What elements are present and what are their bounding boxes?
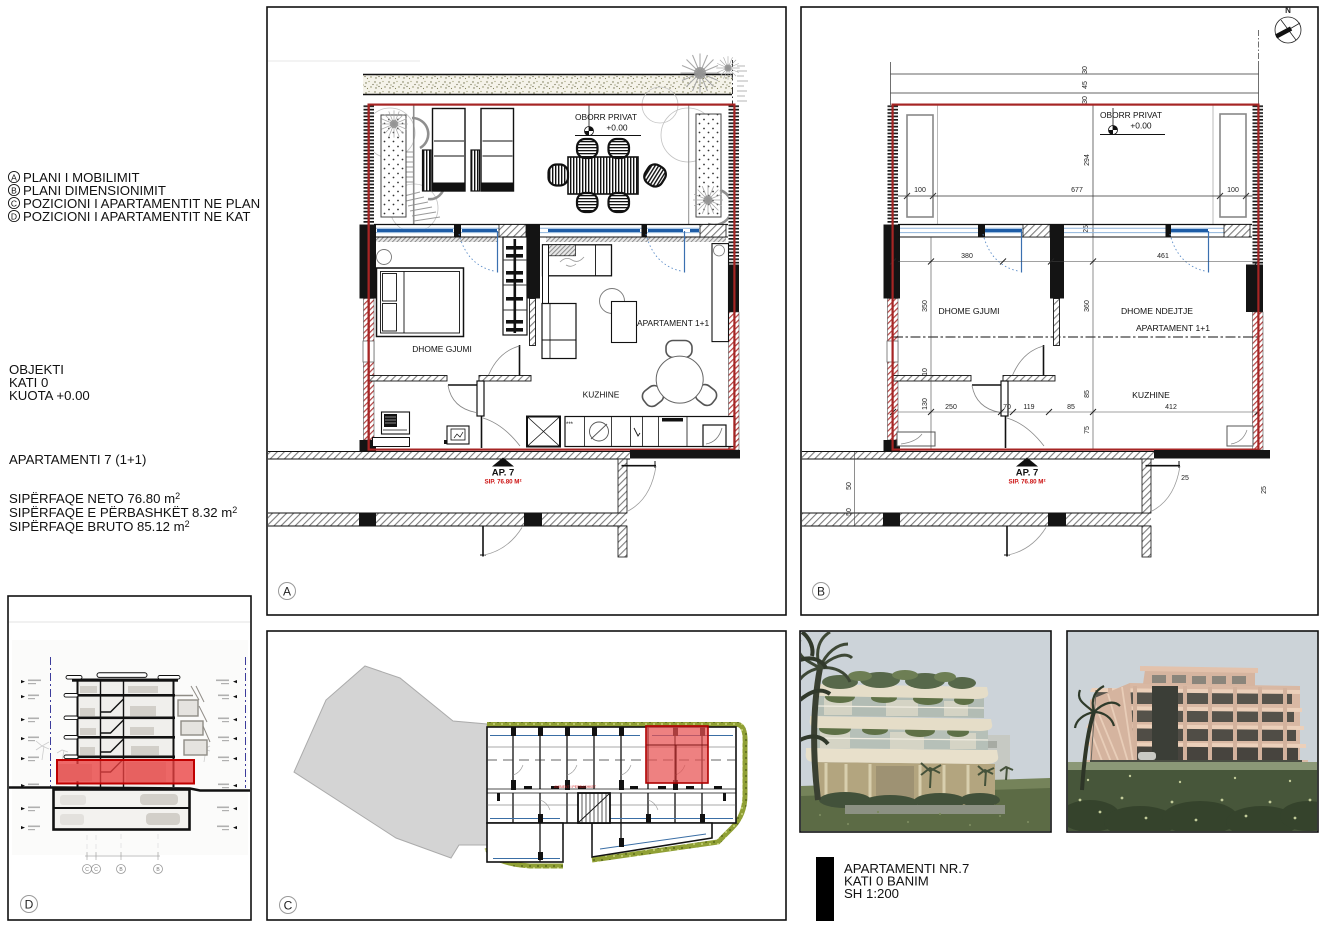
svg-text:85: 85 [1084, 390, 1091, 398]
svg-text:+0.00: +0.00 [606, 123, 628, 133]
svg-text:130: 130 [922, 398, 929, 410]
svg-text:OBORR PRIVAT: OBORR PRIVAT [575, 112, 637, 122]
svg-text:SH 1:200: SH 1:200 [844, 886, 899, 901]
svg-text:AMBIENT I PERBASHKET: AMBIENT I PERBASHKET [554, 785, 597, 789]
svg-text:SIPËRFAQE BRUTO 85.12 m2: SIPËRFAQE BRUTO 85.12 m2 [9, 519, 190, 534]
svg-text:10: 10 [922, 368, 929, 376]
svg-text:30: 30 [1082, 66, 1089, 74]
svg-text:+0.00: +0.00 [1130, 121, 1152, 131]
svg-text:380: 380 [961, 253, 973, 260]
svg-text:45: 45 [1082, 81, 1089, 89]
svg-text:D: D [25, 898, 34, 912]
svg-text:D: D [11, 212, 17, 222]
svg-text:AP. 7: AP. 7 [492, 468, 515, 479]
svg-text:APARTAMENT 1+1: APARTAMENT 1+1 [637, 318, 710, 328]
svg-text:412: 412 [1165, 404, 1177, 411]
svg-text:100: 100 [914, 187, 926, 194]
svg-text:C: C [85, 867, 89, 873]
svg-text:SIPËRFAQE NETO 76.80 m2: SIPËRFAQE NETO 76.80 m2 [9, 491, 180, 506]
svg-text:DHOME GJUMI: DHOME GJUMI [938, 306, 999, 316]
svg-text:350: 350 [922, 300, 929, 312]
svg-text:KUOTA +0.00: KUOTA +0.00 [9, 388, 90, 403]
svg-text:OBORR PRIVAT: OBORR PRIVAT [1100, 110, 1162, 120]
svg-text:100: 100 [1227, 187, 1239, 194]
svg-text:119: 119 [1023, 404, 1034, 411]
svg-text:C: C [11, 199, 17, 209]
svg-text:461: 461 [1157, 253, 1169, 260]
svg-text:APARTAMENTI 7 (1+1): APARTAMENTI 7 (1+1) [9, 452, 146, 467]
svg-text:***: *** [566, 422, 574, 428]
svg-text:APARTAMENT 1+1: APARTAMENT 1+1 [1136, 323, 1210, 333]
svg-text:30: 30 [1082, 96, 1089, 104]
svg-text:360: 360 [1084, 300, 1091, 312]
svg-text:75: 75 [1084, 426, 1091, 434]
svg-text:SIP. 76.80 M²: SIP. 76.80 M² [484, 479, 521, 486]
svg-text:B: B [817, 585, 825, 599]
svg-text:50: 50 [846, 482, 853, 490]
svg-text:C: C [284, 899, 293, 913]
svg-text:85: 85 [1067, 404, 1075, 411]
svg-text:294: 294 [1084, 154, 1091, 166]
svg-text:70: 70 [1003, 404, 1011, 411]
svg-text:250: 250 [945, 404, 957, 411]
svg-text:25: 25 [1181, 475, 1189, 482]
svg-text:KUZHINE: KUZHINE [583, 390, 620, 400]
svg-text:N: N [1285, 6, 1291, 15]
svg-text:A: A [11, 173, 17, 183]
svg-text:KUZHINE: KUZHINE [1132, 390, 1170, 400]
svg-text:C: C [94, 867, 98, 873]
svg-text:POZICIONI I APARTAMENTIT NE KA: POZICIONI I APARTAMENTIT NE KAT [23, 209, 250, 224]
svg-text:50: 50 [846, 508, 853, 516]
svg-text:A: A [283, 585, 291, 599]
svg-text:DHOME NDEJTJE: DHOME NDEJTJE [1121, 306, 1193, 316]
svg-text:677: 677 [1071, 187, 1083, 194]
svg-text:B: B [11, 186, 17, 196]
svg-text:SIPËRFAQE E PËRBASHKËT 8.32 m2: SIPËRFAQE E PËRBASHKËT 8.32 m2 [9, 505, 237, 520]
svg-text:25: 25 [1261, 486, 1268, 494]
svg-text:SIP. 76.80 M²: SIP. 76.80 M² [1008, 479, 1045, 486]
svg-text:AP. 7: AP. 7 [1016, 468, 1039, 479]
svg-text:25: 25 [1083, 225, 1090, 233]
svg-text:DHOME GJUMI: DHOME GJUMI [412, 344, 472, 354]
